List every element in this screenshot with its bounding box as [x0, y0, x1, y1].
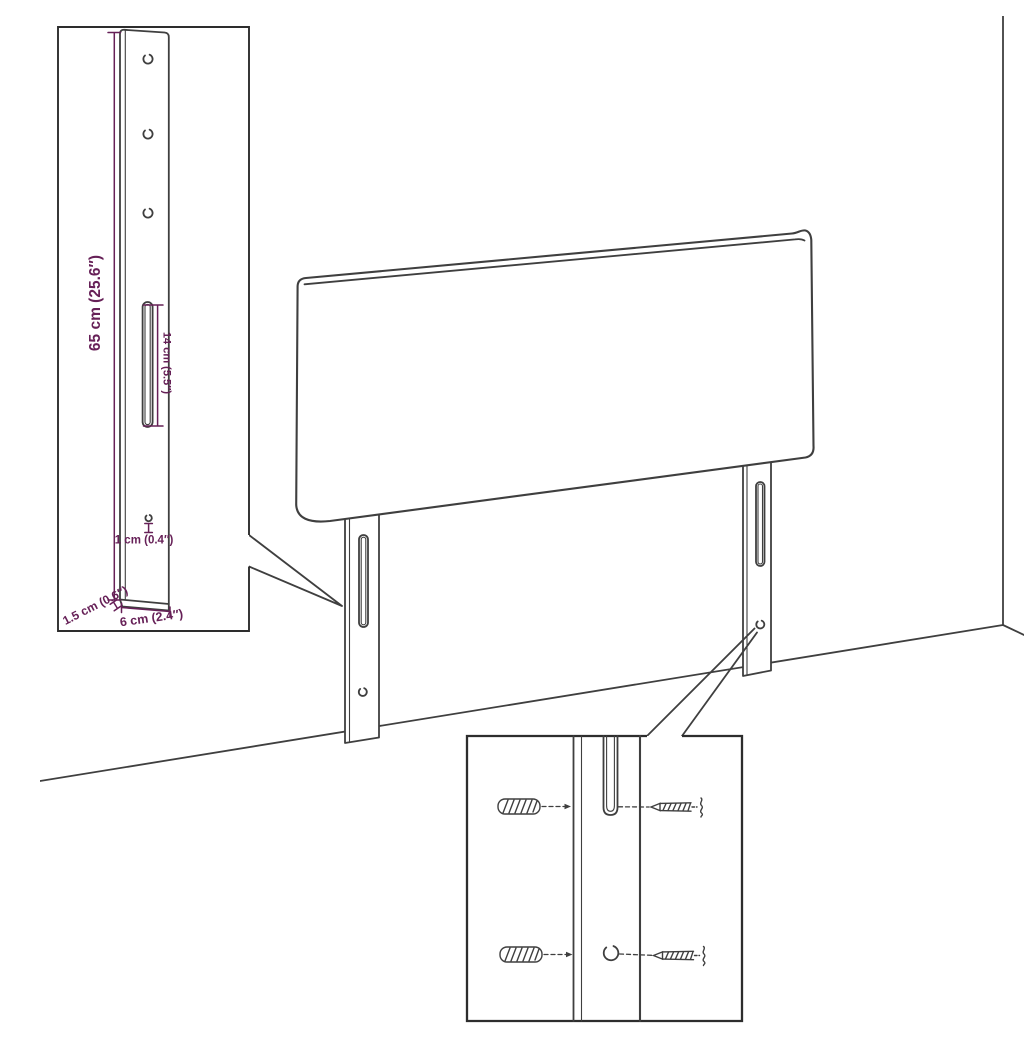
hardware-inset	[467, 736, 742, 1021]
callout-lines	[647, 629, 757, 737]
headboard-panel	[296, 230, 813, 521]
hardware-inset-background	[467, 736, 742, 1021]
hole-diameter-label: 1 cm (0.4″)	[115, 535, 174, 547]
hardware-callout-wedge	[647, 629, 757, 737]
floor-line-right	[1003, 625, 1024, 654]
bracket-outline	[120, 30, 169, 604]
slot-length-label: 14 cm (5.5″)	[161, 332, 173, 394]
right-leg	[743, 446, 771, 676]
bracket-inset: 65 cm (25.6″) 14 cm (5.5″) 1 cm (0.4″) 1…	[58, 27, 249, 631]
bracket-height-label: 65 cm (25.6″)	[87, 255, 104, 351]
bracket-callout-wedge	[249, 535, 342, 606]
product-diagram-svg: 65 cm (25.6″) 14 cm (5.5″) 1 cm (0.4″) 1…	[40, 16, 1024, 1040]
callout-lines	[249, 535, 342, 606]
headboard	[296, 230, 813, 521]
left-leg-outline	[345, 496, 379, 743]
left-leg	[345, 496, 379, 743]
product-image: 65 cm (25.6″) 14 cm (5.5″) 1 cm (0.4″) 1…	[40, 16, 1024, 1040]
